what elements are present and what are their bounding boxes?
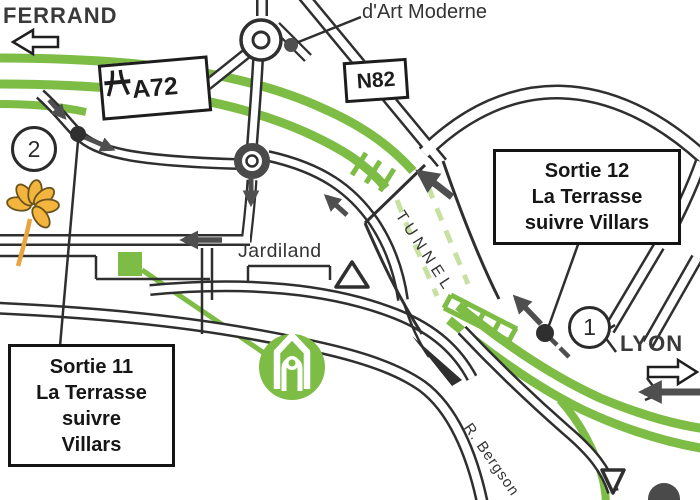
badge-n82-text: N82 — [356, 67, 396, 94]
arrow-up-from-lyon — [516, 298, 541, 324]
arrow-to-lyon-icon — [648, 360, 697, 384]
road-map: CLERMONT FERRAND d'Art Moderne Jardiland… — [0, 0, 700, 500]
badge-a72-text: A72 — [131, 72, 179, 105]
arrow-to-clermont-icon — [13, 30, 58, 54]
label-lyon: LYON — [620, 331, 683, 357]
sortie11-line4: Villars — [11, 432, 172, 458]
house-marker-icon — [259, 334, 325, 400]
callout-sortie-11: Sortie 11 La Terrasse suivre Villars — [8, 344, 175, 467]
destination-square-marker — [118, 252, 142, 276]
sortie12-line3: suivre Villars — [496, 210, 678, 236]
label-jardiland: Jardiland — [238, 240, 322, 263]
sortie12-line2: La Terrasse — [496, 184, 678, 210]
marker-1: 1 — [568, 306, 611, 349]
arrow-upleft-roundabout — [327, 197, 347, 215]
sortie11-line1: Sortie 11 — [11, 354, 172, 380]
sortie11-dot — [70, 126, 86, 142]
sortie12-line1: Sortie 12 — [496, 158, 678, 184]
sortie11-line2: La Terrasse — [11, 380, 172, 406]
flower-icon — [6, 179, 59, 266]
roundabout-art-moderne — [241, 20, 281, 60]
sortie12-dot — [536, 324, 554, 342]
roundabout-center — [238, 147, 266, 175]
marker-2: 2 — [11, 126, 57, 172]
sortie11-line3: suivre — [11, 406, 172, 432]
callout-sortie-12: Sortie 12 La Terrasse suivre Villars — [493, 149, 681, 245]
badge-n82: N82 — [343, 58, 410, 103]
badge-a72: A72 — [98, 55, 212, 120]
label-art-moderne: d'Art Moderne — [362, 1, 487, 24]
art-moderne-dot — [284, 38, 298, 52]
label-ferrand: FERRAND — [3, 3, 118, 29]
motorway-icon — [101, 65, 134, 99]
roundabout-south-island — [648, 483, 680, 500]
